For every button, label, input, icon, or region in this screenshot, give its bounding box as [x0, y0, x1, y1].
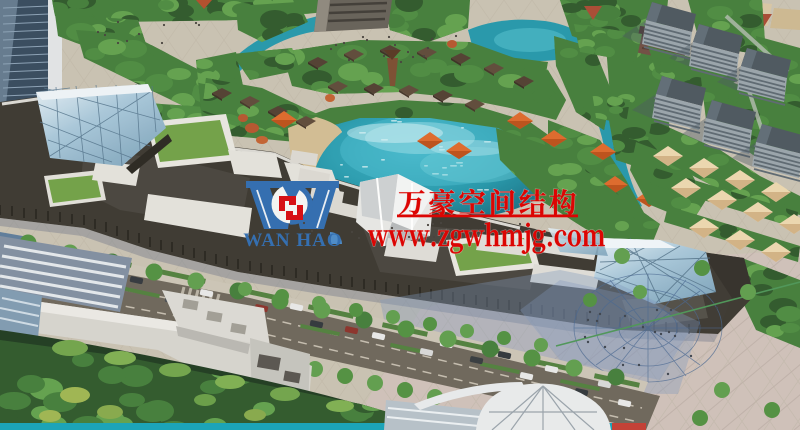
svg-text:WAN HAO: WAN HAO [243, 230, 342, 251]
